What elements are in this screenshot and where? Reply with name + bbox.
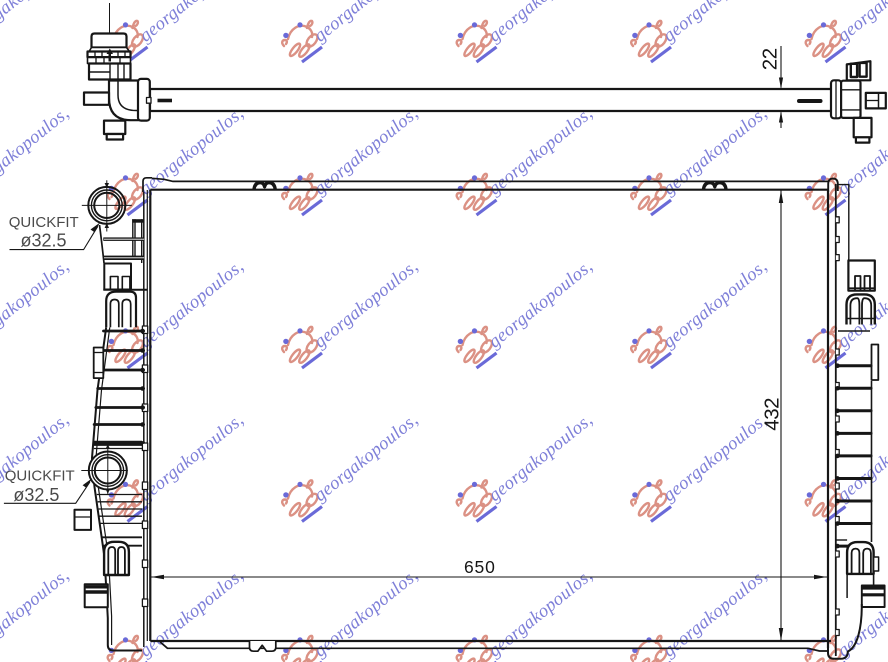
svg-text:ø32.5: ø32.5 [21,231,67,251]
svg-text:QUICKFIT: QUICKFIT [9,214,79,231]
svg-text:ø32.5: ø32.5 [13,485,59,505]
svg-text:432: 432 [760,398,783,431]
svg-text:QUICKFIT: QUICKFIT [5,468,75,485]
svg-text:650: 650 [464,557,496,577]
svg-text:22: 22 [759,48,782,70]
